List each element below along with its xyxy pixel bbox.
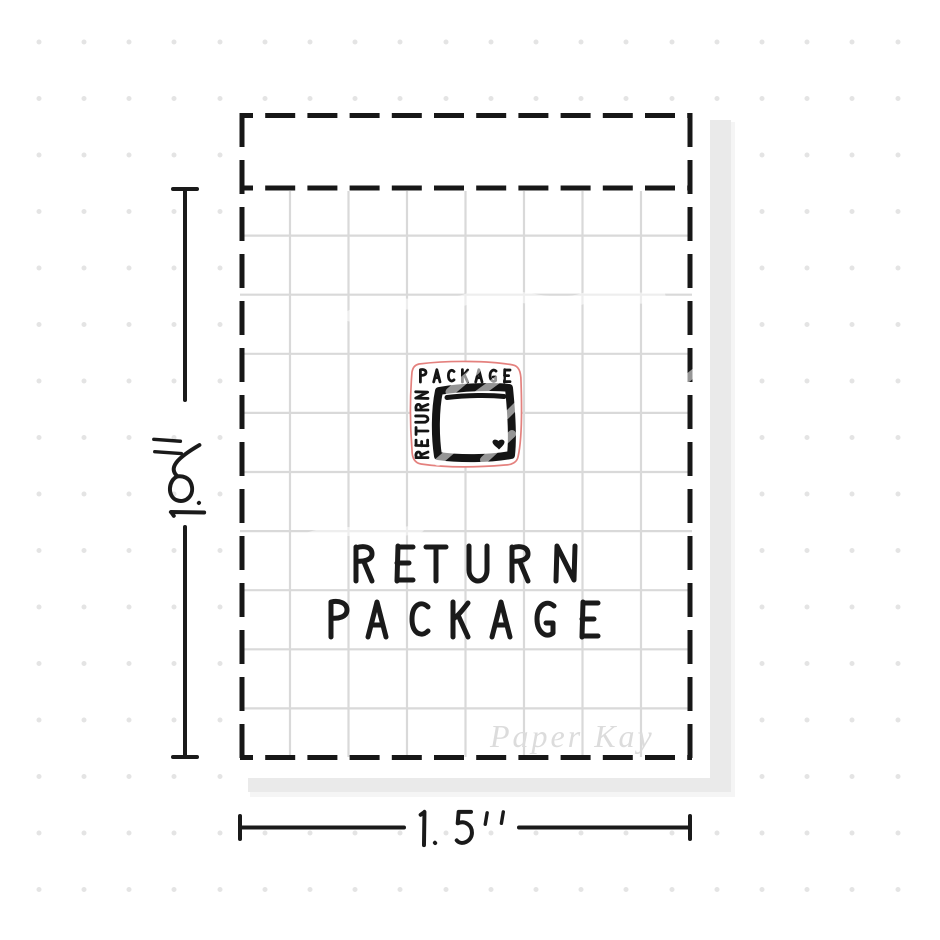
svg-text:Paper Kay: Paper Kay xyxy=(489,718,655,754)
